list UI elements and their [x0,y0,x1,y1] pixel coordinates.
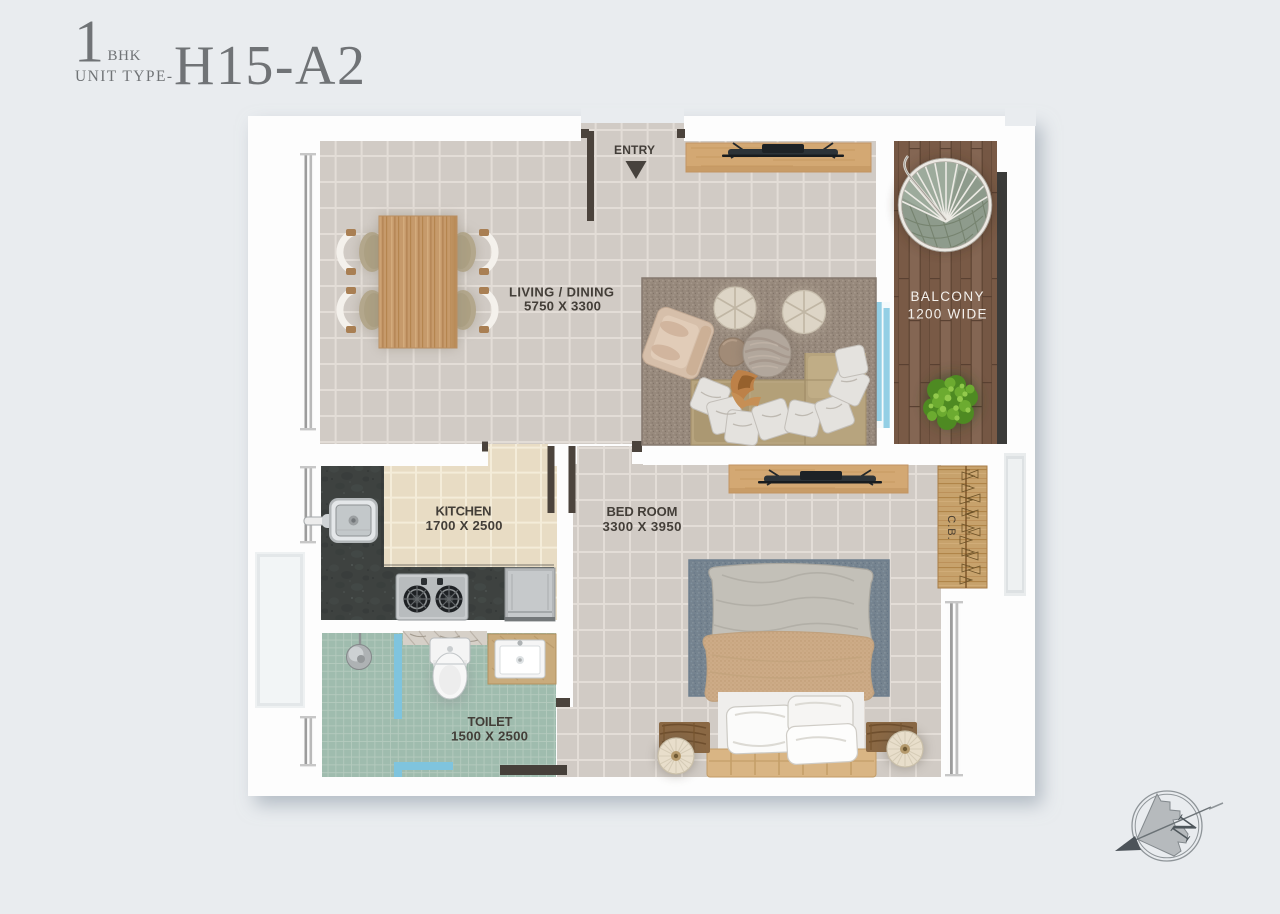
svg-text:C.B.: C.B. [945,515,957,540]
svg-text:ENTRY: ENTRY [614,143,655,157]
svg-text:1500 X 2500: 1500 X 2500 [451,729,528,744]
svg-text:LIVING / DINING: LIVING / DINING [509,285,614,300]
svg-text:UNIT TYPE-: UNIT TYPE- [75,68,172,85]
svg-text:TOILET: TOILET [468,714,513,729]
svg-text:BALCONY: BALCONY [911,289,984,304]
svg-text:BHK: BHK [108,48,141,64]
svg-text:H15-A2: H15-A2 [174,35,365,97]
svg-text:3300 X 3950: 3300 X 3950 [603,519,682,534]
svg-text:KITCHEN: KITCHEN [436,504,492,519]
svg-text:1700 X 2500: 1700 X 2500 [426,518,503,533]
svg-text:1200 WIDE: 1200 WIDE [908,307,987,322]
svg-text:1: 1 [74,9,104,75]
svg-text:BED ROOM: BED ROOM [607,504,678,519]
svg-text:5750 X 3300: 5750 X 3300 [524,299,601,314]
